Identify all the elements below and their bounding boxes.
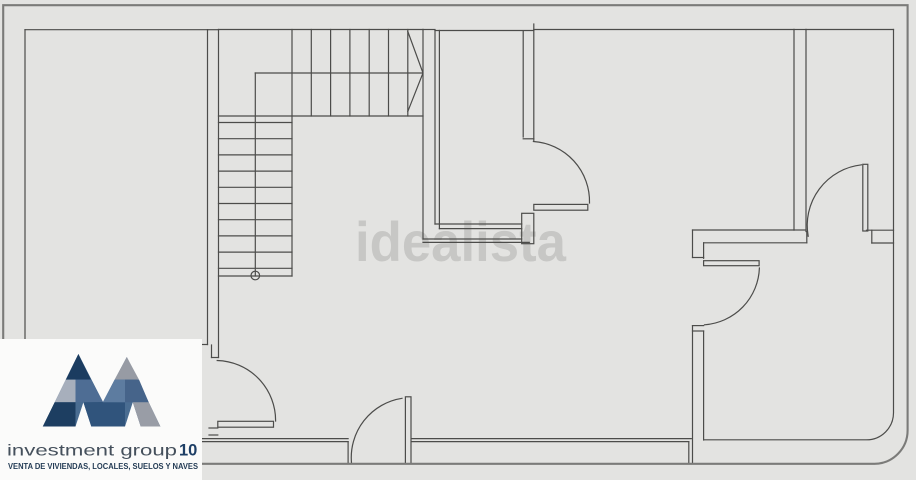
svg-text:10: 10 [179,442,197,460]
svg-text:idealista: idealista [355,210,567,273]
svg-text:VENTA DE VIVIENDAS, LOCALES, S: VENTA DE VIVIENDAS, LOCALES, SUELOS Y NA… [8,462,199,471]
svg-text:investment group: investment group [7,443,177,460]
